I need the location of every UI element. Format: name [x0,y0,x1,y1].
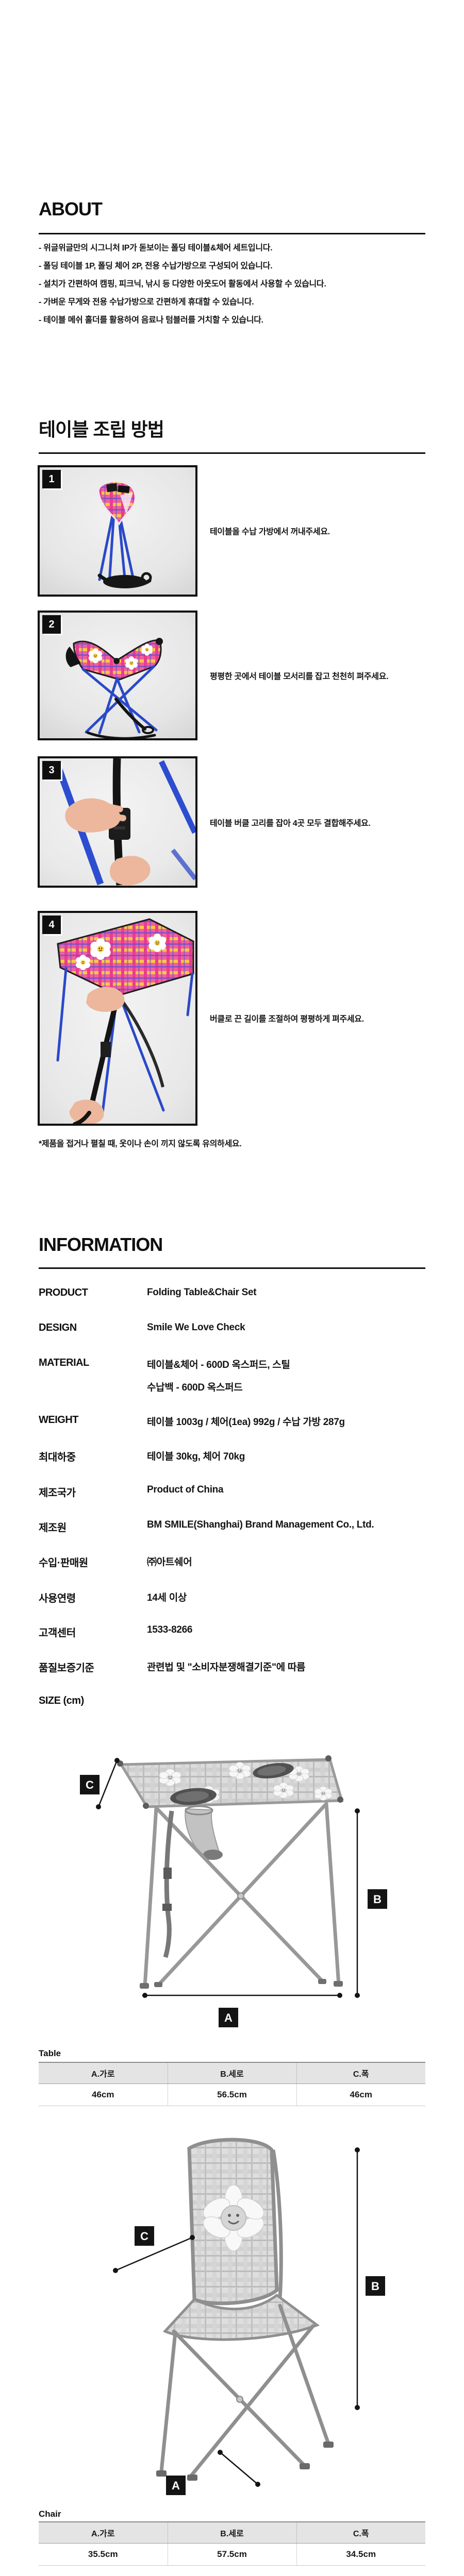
about-bullet-list: - 위글위글만의 시그니처 IP가 돋보이는 폴딩 테이블&체어 세트입니다. … [39,243,326,333]
col-header: C.폭 [296,2522,425,2544]
info-value: BM SMILE(Shanghai) Brand Management Co.,… [147,1519,374,1531]
assembly-title: 테이블 조립 방법 [39,419,164,440]
info-row-cs-center: 고객센터 1533-8266 [39,1624,425,1657]
info-label: DESIGN [39,1322,77,1334]
info-label: 고객센터 [39,1624,76,1639]
svg-text:C: C [86,1778,94,1791]
svg-text:B: B [371,2280,379,2293]
info-label: 사용연령 [39,1590,76,1605]
table-feet [140,1979,343,1989]
info-row-product: PRODUCT Folding Table&Chair Set [39,1287,425,1320]
about-bullet: - 가벼운 무게와 전용 수납가방으로 간편하게 휴대할 수 있습니다. [39,297,326,308]
info-value: 테이블&체어 - 600D 옥스퍼드, 스틸 [147,1357,290,1371]
info-value: ㈜아트쉐어 [147,1554,192,1568]
info-row-importer: 수입·판매원 ㈜아트쉐어 [39,1554,425,1587]
col-header: B.세로 [168,2522,296,2544]
svg-text:A: A [224,2011,233,2024]
about-title: ABOUT [39,199,102,219]
info-label: MATERIAL [39,1357,89,1369]
chair-size-table: A.가로 B.세로 C.폭 35.5cm 57.5cm 34.5cm [39,2521,425,2566]
info-label: 수입·판매원 [39,1554,88,1569]
assembly-step-1-text: 테이블을 수납 가방에서 꺼내주세요. [210,524,425,537]
assembly-step-4-text: 버클로 끈 길이를 조절하여 평평하게 펴주세요. [210,1012,425,1024]
chair-size-caption: Chair [39,2509,61,2519]
info-value: Folding Table&Chair Set [147,1287,256,1298]
content-column: ABOUT - 위글위글만의 시그니처 IP가 돋보이는 폴딩 테이블&체어 세… [39,0,425,2576]
information-title: INFORMATION [39,1234,162,1255]
table-size-table: A.가로 B.세로 C.폭 46cm 56.5cm 46cm [39,2062,425,2106]
col-header: B.세로 [168,2062,296,2084]
table-dimension-diagram: C B A [39,1749,425,2030]
about-bullet: - 폴딩 테이블 1P, 폴딩 체어 2P, 전용 수납가방으로 구성되어 있습… [39,261,326,272]
info-value: 1533-8266 [147,1624,192,1636]
strap-adjusting-photo-illustration [40,913,195,1124]
info-value: 관련법 및 "소비자분쟁해결기준"에 따름 [147,1659,305,1673]
information-divider [39,1267,425,1269]
assembly-step-3-text: 테이블 버클 고리를 잡아 4곳 모두 결합해주세요. [210,816,425,828]
buckle-fastening-photo-illustration [40,758,195,886]
size-value: 46cm [39,2084,168,2106]
step-number-badge: 2 [42,615,61,634]
info-label: 제조원 [39,1519,67,1534]
product-detail-page: ABOUT - 위글위글만의 시그니처 IP가 돋보이는 폴딩 테이블&체어 세… [0,0,464,2576]
info-row-manufacturer: 제조원 BM SMILE(Shanghai) Brand Management … [39,1519,425,1552]
svg-text:C: C [140,2230,148,2243]
size-section-label: SIZE (cm) [39,1695,84,1707]
info-label: 최대하중 [39,1449,76,1464]
assembly-divider [39,452,425,454]
step-number-badge: 3 [42,761,61,779]
info-label: PRODUCT [39,1287,88,1299]
info-row-material: MATERIAL 테이블&체어 - 600D 옥스퍼드, 스틸 수납백 - 60… [39,1357,425,1414]
assembly-step-3-photo: 3 [38,756,197,888]
chair-dimension-diagram: C B A [39,2136,425,2501]
size-value: 35.5cm [39,2544,168,2566]
info-value: 테이블 30kg, 체어 70kg [147,1449,245,1463]
about-bullet: - 설치가 간편하여 캠핑, 피크닉, 낚시 등 다양한 아웃도어 활동에서 사… [39,279,326,290]
table-size-caption: Table [39,2048,61,2059]
info-value-line2: 수납백 - 600D 옥스퍼드 [147,1380,242,1394]
info-row-max-load: 최대하중 테이블 30kg, 체어 70kg [39,1449,425,1482]
half-opened-table-photo-illustration [40,613,195,738]
info-value: 테이블 1003g / 체어(1ea) 992g / 수납 가방 287g [147,1414,345,1428]
info-value: 14세 이상 [147,1590,187,1604]
col-header: A.가로 [39,2062,168,2084]
chair-feet [156,2442,334,2481]
info-row-weight: WEIGHT 테이블 1003g / 체어(1ea) 992g / 수납 가방 … [39,1414,425,1447]
assembly-step-2-photo: 2 [38,611,197,740]
assembly-step-2-text: 평평한 곳에서 테이블 모서리를 잡고 천천히 펴주세요. [210,669,425,682]
about-bullet: - 테이블 메쉬 홀더를 활용하여 음료나 텀블러를 거치할 수 있습니다. [39,315,326,326]
step-number-badge: 1 [42,470,61,488]
info-row-country: 제조국가 Product of China [39,1484,425,1517]
folded-table-photo-illustration [40,467,195,595]
info-value: Product of China [147,1484,223,1496]
assembly-footnote: *제품을 접거나 펼칠 때, 옷이나 손이 끼지 않도록 유의하세요. [39,1137,241,1149]
info-row-warranty: 품질보증기준 관련법 및 "소비자분쟁해결기준"에 따름 [39,1659,425,1692]
size-value: 46cm [296,2084,425,2106]
about-divider [39,233,425,234]
info-label: 제조국가 [39,1484,76,1499]
size-value: 34.5cm [296,2544,425,2566]
about-bullet: - 위글위글만의 시그니처 IP가 돋보이는 폴딩 테이블&체어 세트입니다. [39,243,326,253]
col-header: C.폭 [296,2062,425,2084]
step-number-badge: 4 [42,916,61,934]
svg-text:A: A [172,2479,180,2492]
col-header: A.가로 [39,2522,168,2544]
info-row-design: DESIGN Smile We Love Check [39,1322,425,1355]
svg-text:B: B [373,1893,382,1906]
size-value: 56.5cm [168,2084,296,2106]
info-label: WEIGHT [39,1414,78,1426]
info-value: Smile We Love Check [147,1322,245,1333]
size-value: 57.5cm [168,2544,296,2566]
assembly-step-4-photo: 4 [38,911,197,1126]
assembly-step-1-photo: 1 [38,465,197,597]
info-row-age: 사용연령 14세 이상 [39,1590,425,1623]
info-label: 품질보증기준 [39,1659,94,1674]
